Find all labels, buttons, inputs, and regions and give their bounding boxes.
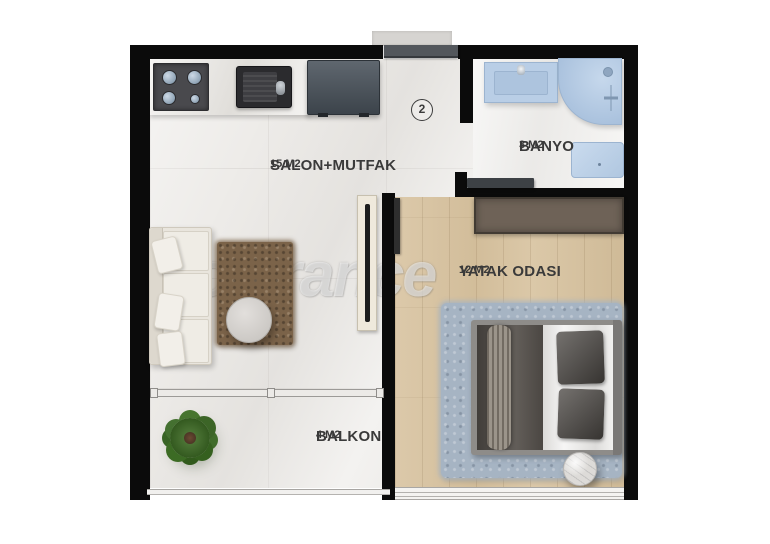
wall-bathroom-stub <box>455 172 467 192</box>
bed-pillow <box>557 388 605 440</box>
stove-burner <box>187 70 202 85</box>
bathroom-sliding-door <box>467 178 534 188</box>
fridge-foot <box>359 113 369 117</box>
bed-headboard <box>613 320 622 455</box>
unit-number-badge: 2 <box>411 99 433 121</box>
refrigerator <box>307 60 380 115</box>
radiator-panel <box>357 195 377 331</box>
shower-hardware <box>604 85 618 111</box>
room-area: 15 M2 <box>270 158 301 170</box>
bed-throw-blanket <box>487 325 511 450</box>
stove <box>153 63 209 111</box>
plant-pot <box>184 432 196 444</box>
wall-top-right <box>458 45 638 59</box>
slider-cap <box>150 388 158 398</box>
coffee-table <box>226 297 272 343</box>
stove-burner <box>190 94 200 104</box>
room-area: 3 M2 <box>519 139 543 151</box>
fridge-foot <box>318 113 328 117</box>
sink-faucet <box>276 81 285 95</box>
bedroom-window <box>395 487 624 500</box>
entry-door <box>384 45 458 58</box>
bedroom-door <box>394 198 400 254</box>
window-glass-line <box>395 492 624 493</box>
wardrobe <box>474 197 624 234</box>
wall-top-left <box>130 45 383 59</box>
balcony-sliding-door <box>150 389 384 397</box>
wall-left <box>130 45 150 500</box>
wall-bathroom-bottom <box>455 188 624 197</box>
slider-cap <box>376 388 384 398</box>
stove-burner <box>162 91 176 105</box>
bed <box>471 320 622 455</box>
entry-mat <box>372 31 452 46</box>
room-area: 4 M2 <box>316 429 340 441</box>
stove-burner <box>162 70 177 85</box>
radiator-slot <box>365 204 370 322</box>
sofa-pillow <box>153 292 184 332</box>
toilet <box>571 142 624 178</box>
sink-basin <box>243 72 277 102</box>
sofa-pillow <box>156 331 186 368</box>
room-area: 12 M2 <box>459 264 490 276</box>
sofa <box>149 227 212 365</box>
floor-plan: Tolerance® 2 <box>0 0 770 544</box>
kitchen-sink <box>236 66 292 108</box>
toilet-flush-dot <box>598 163 601 166</box>
bed-pillow <box>556 330 605 385</box>
balcony-plant <box>170 418 210 458</box>
shower-head <box>603 67 613 77</box>
wall-right <box>624 45 638 500</box>
balcony-railing <box>147 489 390 495</box>
bathroom-vanity <box>484 62 558 103</box>
wall-hall-bathroom <box>460 45 473 123</box>
vanity-faucet <box>517 65 525 75</box>
slider-cap <box>267 388 275 398</box>
window-glass-line <box>395 496 624 497</box>
side-table <box>563 452 597 486</box>
